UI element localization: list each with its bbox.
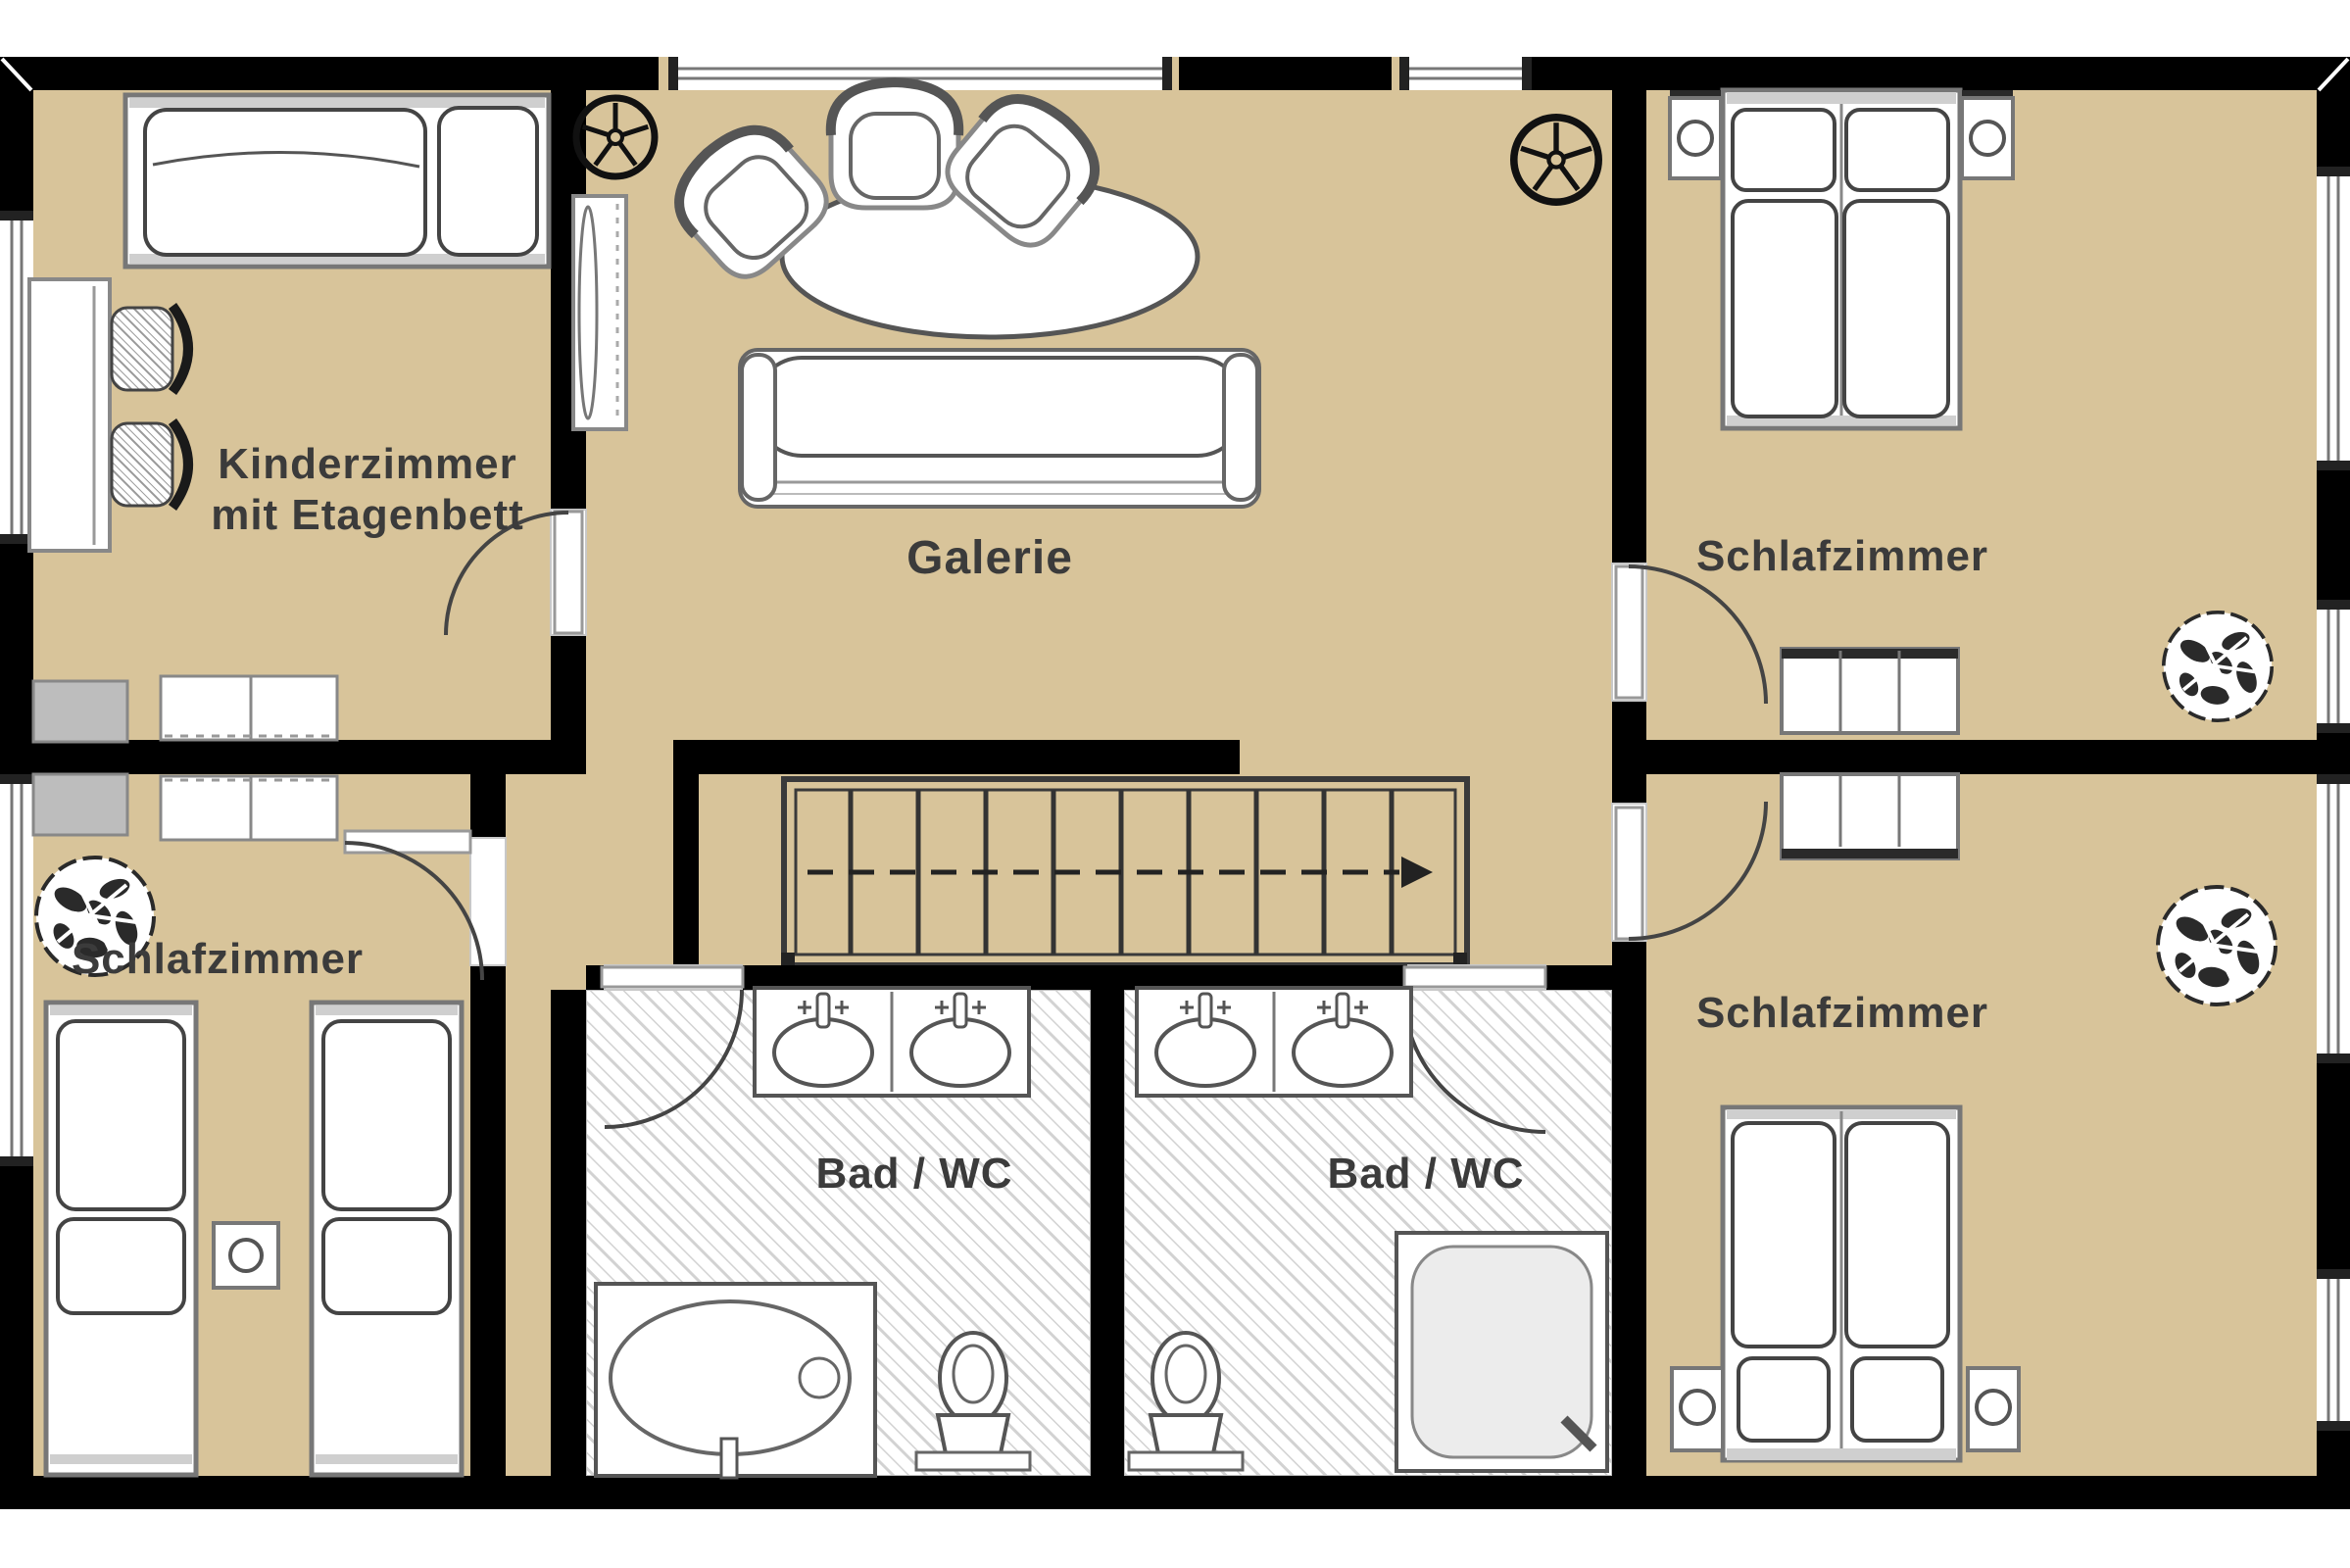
floor-plan: Kinderzimmer mit Etagenbett Galerie Schl… bbox=[0, 0, 2350, 1568]
window-top-2 bbox=[1399, 57, 1532, 90]
label-schlafzimmer-bottom-right: Schlafzimmer bbox=[1696, 989, 1988, 1037]
window-right-1 bbox=[2317, 167, 2350, 470]
desk bbox=[29, 279, 110, 551]
nightstand bbox=[1670, 90, 1721, 178]
shower bbox=[1396, 1233, 1607, 1471]
plant-icon bbox=[2158, 887, 2276, 1004]
nightstand bbox=[214, 1223, 278, 1288]
double-bed bbox=[1723, 1107, 1960, 1460]
double-bed bbox=[1723, 90, 1960, 428]
cabinet bbox=[573, 196, 626, 429]
nightstand bbox=[1672, 1368, 1723, 1452]
window-right-4 bbox=[2317, 1269, 2350, 1431]
bunk-bed bbox=[125, 95, 549, 267]
closet-block bbox=[33, 774, 127, 835]
vanity-double-sink bbox=[755, 988, 1029, 1096]
label-kinderzimmer-sub: mit Etagenbett bbox=[211, 491, 524, 539]
dresser bbox=[161, 776, 337, 840]
chest-of-drawers bbox=[1782, 774, 1958, 858]
label-schlafzimmer-bottom-left: Schlafzimmer bbox=[72, 935, 364, 983]
label-galerie: Galerie bbox=[906, 532, 1073, 584]
window-right-2 bbox=[2317, 600, 2350, 733]
floor-plan-svg: Kinderzimmer mit Etagenbett Galerie Schl… bbox=[0, 0, 2350, 1568]
vanity-double-sink bbox=[1137, 988, 1411, 1096]
armchair bbox=[831, 82, 958, 208]
dresser bbox=[161, 676, 337, 740]
single-bed bbox=[46, 1003, 196, 1475]
chest-of-drawers bbox=[1782, 649, 1958, 733]
sofa bbox=[740, 350, 1259, 507]
closet-block bbox=[33, 681, 127, 742]
nightstand bbox=[1962, 90, 2013, 178]
bathtub bbox=[596, 1284, 875, 1478]
window-right-3 bbox=[2317, 774, 2350, 1063]
margin-bottom bbox=[0, 1509, 2350, 1568]
single-bed bbox=[312, 1003, 462, 1475]
margin-top bbox=[0, 0, 2350, 57]
window-left-2 bbox=[0, 774, 33, 1166]
label-kinderzimmer: Kinderzimmer bbox=[218, 440, 516, 488]
label-bad-wc-right: Bad / WC bbox=[1327, 1150, 1524, 1198]
label-bad-wc-left: Bad / WC bbox=[815, 1150, 1012, 1198]
label-schlafzimmer-top-right: Schlafzimmer bbox=[1696, 532, 1988, 580]
nightstand bbox=[1968, 1368, 2019, 1452]
plant-icon bbox=[2164, 612, 2272, 720]
